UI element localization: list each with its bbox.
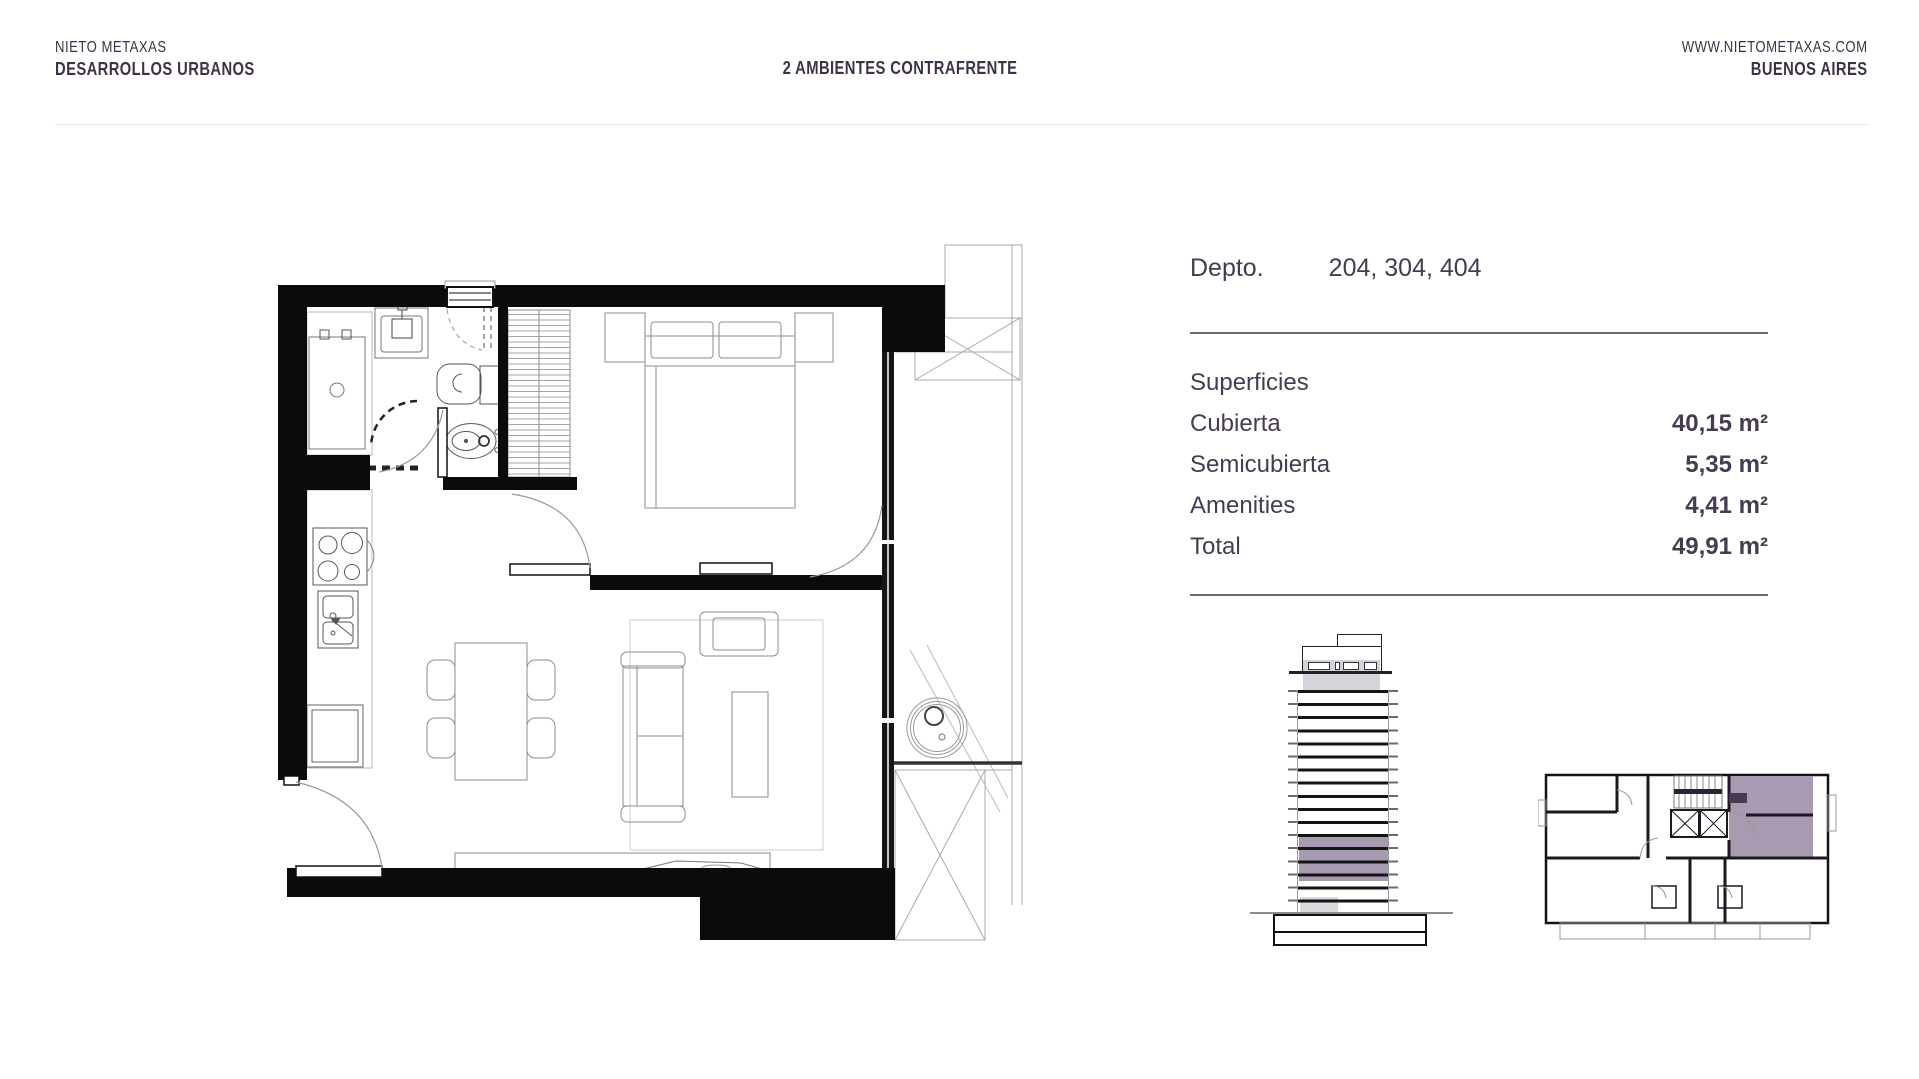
table-row: Cubierta 40,15 m² [1190, 403, 1768, 444]
row-label: Amenities [1190, 485, 1295, 526]
brand-tagline: DESARROLLOS URBANOS [55, 58, 255, 80]
rooftop-structure [1302, 646, 1382, 673]
kitchen-sink [318, 591, 358, 648]
table-row: Semicubierta 5,35 m² [1190, 444, 1768, 485]
row-label: Total [1190, 526, 1241, 567]
door-arcs [296, 410, 882, 868]
rug [630, 620, 823, 850]
bed [605, 313, 833, 508]
page-title: 2 AMBIENTES CONTRAFRENTE [783, 58, 1018, 79]
depto-numbers: 204, 304, 404 [1329, 252, 1482, 284]
panel-divider-bottom [1190, 594, 1768, 596]
kitchen [307, 312, 374, 768]
brochure-page: NIETO METAXAS DESARROLLOS URBANOS 2 AMBI… [0, 0, 1919, 1079]
walls [278, 285, 945, 940]
brand-name: NIETO METAXAS [55, 38, 255, 58]
building-elevation-drawing [1240, 628, 1460, 958]
row-value: 4,41 m² [1685, 485, 1768, 526]
balcony-tabs-right [1389, 690, 1398, 913]
toilet [437, 364, 500, 404]
vanity-sink [375, 301, 428, 358]
glass-joint [881, 718, 895, 723]
row-label: Semicubierta [1190, 444, 1330, 485]
fridge [307, 705, 363, 767]
sofa [621, 652, 685, 822]
floor-key-plan [1538, 768, 1843, 958]
contact-block: WWW.NIETOMETAXAS.COM BUENOS AIRES [1682, 38, 1868, 80]
rooftop-strip [1303, 660, 1380, 671]
row-value: 40,15 m² [1672, 403, 1768, 444]
armchair [700, 612, 778, 656]
dashed-doors [368, 307, 491, 468]
website-text: WWW.NIETOMETAXAS.COM [1682, 38, 1868, 58]
floor-slabs [1298, 690, 1388, 913]
bathroom-window [445, 281, 495, 307]
glass-joint2 [881, 540, 895, 544]
podium-lower [1273, 931, 1427, 946]
stairs [1674, 776, 1722, 808]
floor-plan-drawing [270, 233, 1050, 968]
row-value: 49,91 m² [1672, 526, 1768, 567]
row-label: Cubierta [1190, 403, 1281, 444]
tower-body [1297, 690, 1389, 913]
unit-dark-wall [1729, 793, 1747, 803]
brand-block: NIETO METAXAS DESARROLLOS URBANOS [55, 38, 255, 80]
highlighted-unit [1729, 776, 1813, 859]
header-divider [55, 124, 1868, 125]
unit-info-panel: Depto. 204, 304, 404 Superficies Cubiert… [1190, 252, 1768, 284]
rooftop-gray-block [1303, 674, 1380, 691]
balcony-table [907, 645, 1008, 812]
table-row: Total 49,91 m² [1190, 526, 1768, 567]
surfaces-title: Superficies [1190, 362, 1309, 403]
wardrobe [508, 310, 570, 477]
bidet [446, 424, 504, 459]
panel-divider-top [1190, 332, 1768, 334]
depto-label: Depto. [1190, 252, 1264, 284]
table-row: Amenities 4,41 m² [1190, 485, 1768, 526]
elevators [1671, 810, 1727, 837]
balcony-tabs-left [1288, 690, 1297, 913]
coffee-table [732, 692, 768, 797]
stove [313, 528, 374, 585]
surfaces-table: Superficies Cubierta 40,15 m² Semicubier… [1190, 362, 1768, 567]
city-text: BUENOS AIRES [1682, 58, 1868, 80]
row-value: 5,35 m² [1685, 444, 1768, 485]
dining-set [427, 643, 555, 780]
